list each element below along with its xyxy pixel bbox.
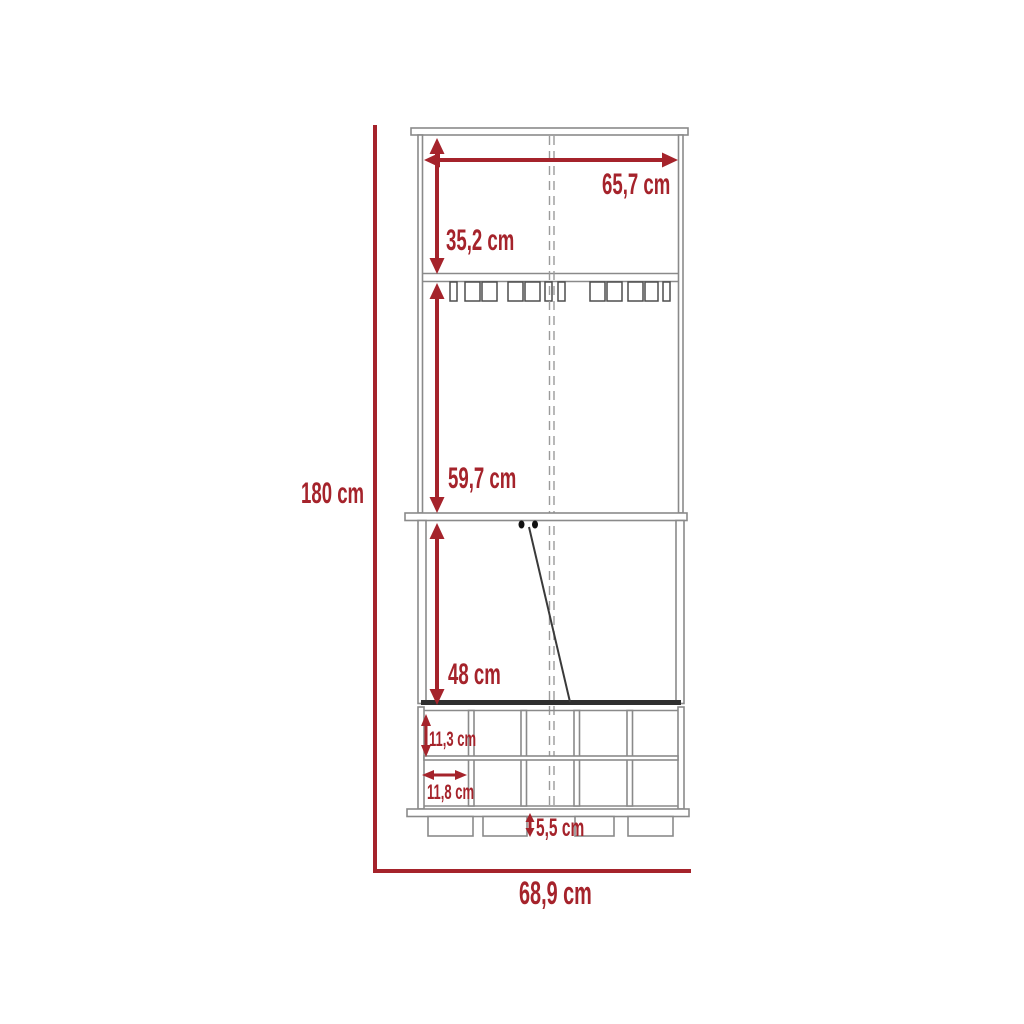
open-door-swing-line [529, 527, 570, 702]
cabinet-line-drawing [0, 0, 1024, 1024]
worktop-shelf [405, 513, 687, 521]
label-leg-height: 5,5 cm [536, 816, 584, 841]
stemware-rack-rails [450, 282, 670, 301]
middle-section-height-arrow [430, 283, 445, 513]
upper-shelf [423, 274, 679, 282]
label-top-width: 65,7 cm [602, 170, 670, 200]
label-total-height: 180 cm [301, 479, 364, 509]
overall-width-extent-line [373, 869, 691, 873]
label-bottle-slot-width: 11,8 cm [427, 782, 474, 803]
furniture-dimension-diagram: 65,7 cm 35,2 cm 59,7 cm 48 cm 180 cm 68,… [0, 0, 1024, 1024]
label-door-section-height: 48 cm [448, 660, 501, 690]
bottle-slot-width-arrow [422, 770, 467, 780]
center-dashed-line [550, 136, 555, 806]
overall-height-extent-line [373, 125, 377, 873]
wine-rack-middle-shelf [424, 756, 678, 760]
top-width-arrow [424, 153, 678, 168]
label-middle-section-height: 59,7 cm [448, 464, 516, 494]
label-upper-section-height: 35,2 cm [446, 226, 514, 256]
cabinet-top-panel [411, 128, 688, 135]
label-total-width: 68,9 cm [519, 877, 592, 909]
label-bottle-slot-height: 11,3 cm [429, 729, 476, 750]
door-section-height-arrow [430, 523, 445, 705]
